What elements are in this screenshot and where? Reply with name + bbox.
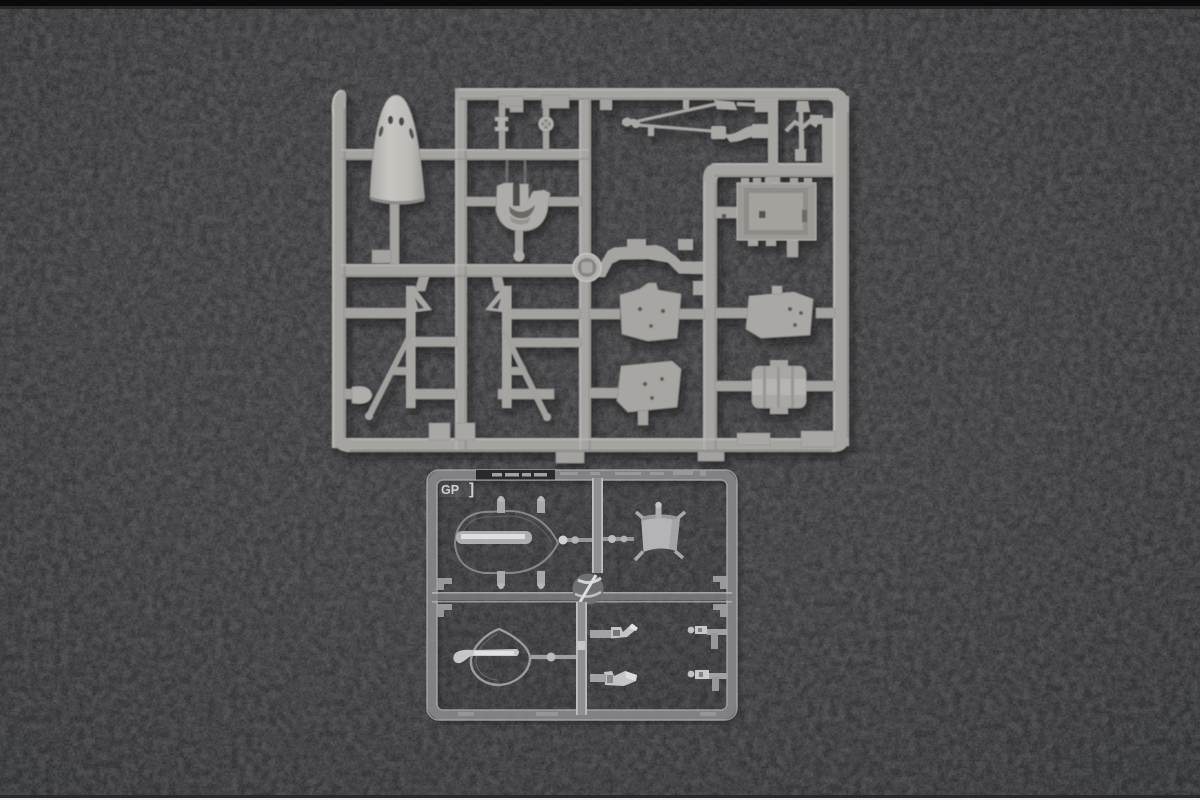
svg-text:GP: GP [441, 483, 459, 497]
svg-text:]: ] [469, 481, 474, 498]
